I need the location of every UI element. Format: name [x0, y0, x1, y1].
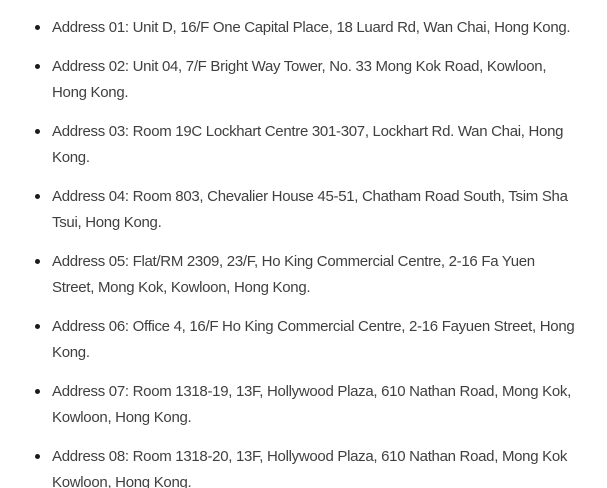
address-item: Address 06: Office 4, 16/F Ho King Comme…	[52, 314, 580, 366]
address-text: Address 08: Room 1318-20, 13F, Hollywood…	[52, 448, 567, 488]
bullet-icon	[35, 194, 40, 199]
bullet-icon	[35, 259, 40, 264]
address-item: Address 02: Unit 04, 7/F Bright Way Towe…	[52, 54, 580, 106]
bullet-icon	[35, 129, 40, 134]
address-list: Address 01: Unit D, 16/F One Capital Pla…	[0, 0, 607, 488]
address-item: Address 07: Room 1318-19, 13F, Hollywood…	[52, 379, 580, 431]
address-item: Address 04: Room 803, Chevalier House 45…	[52, 184, 580, 236]
address-item: Address 08: Room 1318-20, 13F, Hollywood…	[52, 444, 580, 488]
bullet-icon	[35, 64, 40, 69]
address-text: Address 05: Flat/RM 2309, 23/F, Ho King …	[52, 253, 535, 296]
address-text: Address 02: Unit 04, 7/F Bright Way Towe…	[52, 58, 546, 101]
bullet-icon	[35, 454, 40, 459]
bullet-icon	[35, 25, 40, 30]
bullet-icon	[35, 389, 40, 394]
address-text: Address 04: Room 803, Chevalier House 45…	[52, 188, 568, 231]
address-text: Address 06: Office 4, 16/F Ho King Comme…	[52, 318, 574, 361]
address-text: Address 07: Room 1318-19, 13F, Hollywood…	[52, 383, 571, 426]
address-item: Address 03: Room 19C Lockhart Centre 301…	[52, 119, 580, 171]
address-item: Address 01: Unit D, 16/F One Capital Pla…	[52, 15, 580, 41]
address-item: Address 05: Flat/RM 2309, 23/F, Ho King …	[52, 249, 580, 301]
address-text: Address 01: Unit D, 16/F One Capital Pla…	[52, 19, 570, 36]
address-text: Address 03: Room 19C Lockhart Centre 301…	[52, 123, 563, 166]
bullet-icon	[35, 324, 40, 329]
